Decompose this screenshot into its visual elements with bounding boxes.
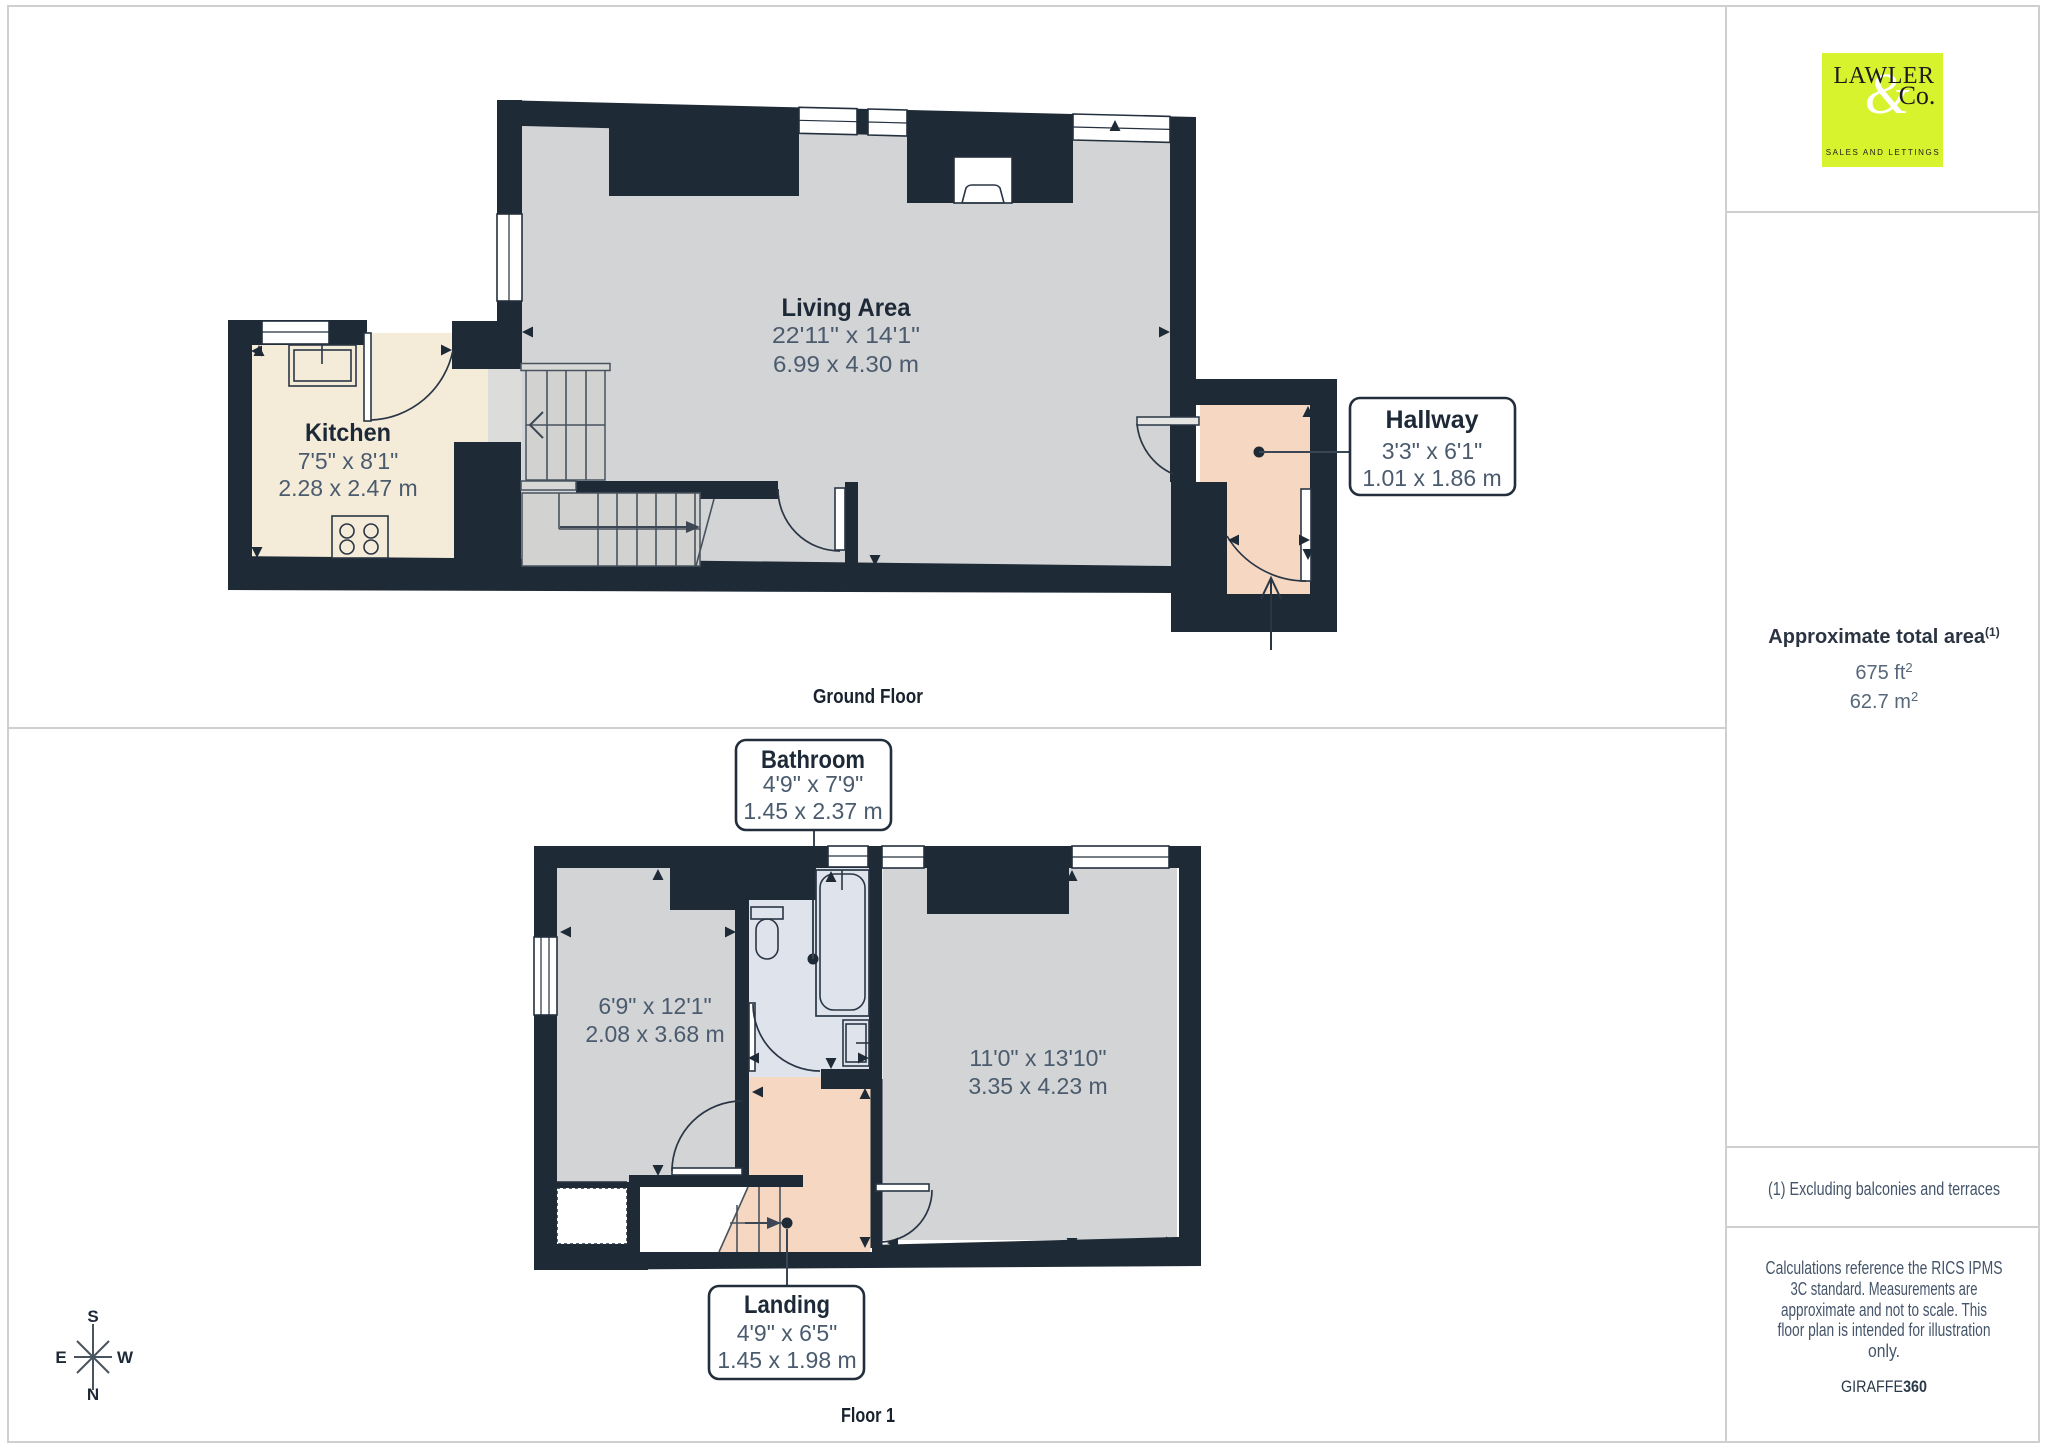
svg-text:Co.: Co. xyxy=(1899,81,1936,110)
svg-text:675 ft2: 675 ft2 xyxy=(1855,660,1912,684)
svg-text:7'5" x 8'1": 7'5" x 8'1" xyxy=(298,448,399,474)
svg-text:6'9" x 12'1": 6'9" x 12'1" xyxy=(598,993,711,1019)
svg-text:4'9" x 6'5": 4'9" x 6'5" xyxy=(737,1320,838,1346)
svg-text:(1) Excluding balconies and te: (1) Excluding balconies and terraces xyxy=(1768,1179,2000,1199)
svg-text:62.7 m2: 62.7 m2 xyxy=(1850,689,1918,713)
svg-text:Bathroom: Bathroom xyxy=(761,746,865,774)
svg-text:N: N xyxy=(87,1385,99,1404)
svg-text:Kitchen: Kitchen xyxy=(305,419,391,447)
svg-text:2.08 x 3.68 m: 2.08 x 3.68 m xyxy=(585,1021,724,1047)
svg-text:Hallway: Hallway xyxy=(1386,406,1479,434)
svg-text:floor plan is intended for ill: floor plan is intended for illustration xyxy=(1778,1320,1991,1340)
svg-text:GIRAFFE360: GIRAFFE360 xyxy=(1841,1378,1927,1396)
svg-text:3C standard. Measurements are: 3C standard. Measurements are xyxy=(1791,1279,1978,1299)
svg-text:Approximate total area(1): Approximate total area(1) xyxy=(1768,625,1999,648)
svg-text:Calculations reference the RIC: Calculations reference the RICS IPMS xyxy=(1766,1258,2003,1278)
svg-text:1.01 x 1.86 m: 1.01 x 1.86 m xyxy=(1362,465,1501,491)
svg-text:1.45 x 2.37 m: 1.45 x 2.37 m xyxy=(743,798,882,824)
svg-text:3'3" x 6'1": 3'3" x 6'1" xyxy=(1382,438,1483,464)
svg-text:4'9" x 7'9": 4'9" x 7'9" xyxy=(763,771,864,797)
svg-text:E: E xyxy=(55,1348,66,1367)
svg-text:S: S xyxy=(87,1307,98,1326)
svg-text:3.35 x 4.23 m: 3.35 x 4.23 m xyxy=(968,1073,1107,1099)
svg-text:11'0" x 13'10": 11'0" x 13'10" xyxy=(969,1045,1106,1071)
svg-text:Floor 1: Floor 1 xyxy=(841,1405,895,1427)
svg-text:W: W xyxy=(117,1348,134,1367)
svg-text:1.45 x 1.98 m: 1.45 x 1.98 m xyxy=(717,1347,856,1373)
svg-text:Living Area: Living Area xyxy=(782,294,912,322)
svg-text:only.: only. xyxy=(1868,1341,1900,1361)
svg-text:6.99 x 4.30 m: 6.99 x 4.30 m xyxy=(773,351,919,377)
svg-text:Landing: Landing xyxy=(744,1291,830,1319)
svg-text:22'11" x 14'1": 22'11" x 14'1" xyxy=(772,322,920,348)
svg-text:approximate and not to scale.: approximate and not to scale. This xyxy=(1781,1300,1987,1320)
svg-text:Ground Floor: Ground Floor xyxy=(813,686,923,708)
svg-text:2.28 x 2.47 m: 2.28 x 2.47 m xyxy=(278,475,417,501)
svg-text:SALES AND LETTINGS: SALES AND LETTINGS xyxy=(1826,148,1941,157)
